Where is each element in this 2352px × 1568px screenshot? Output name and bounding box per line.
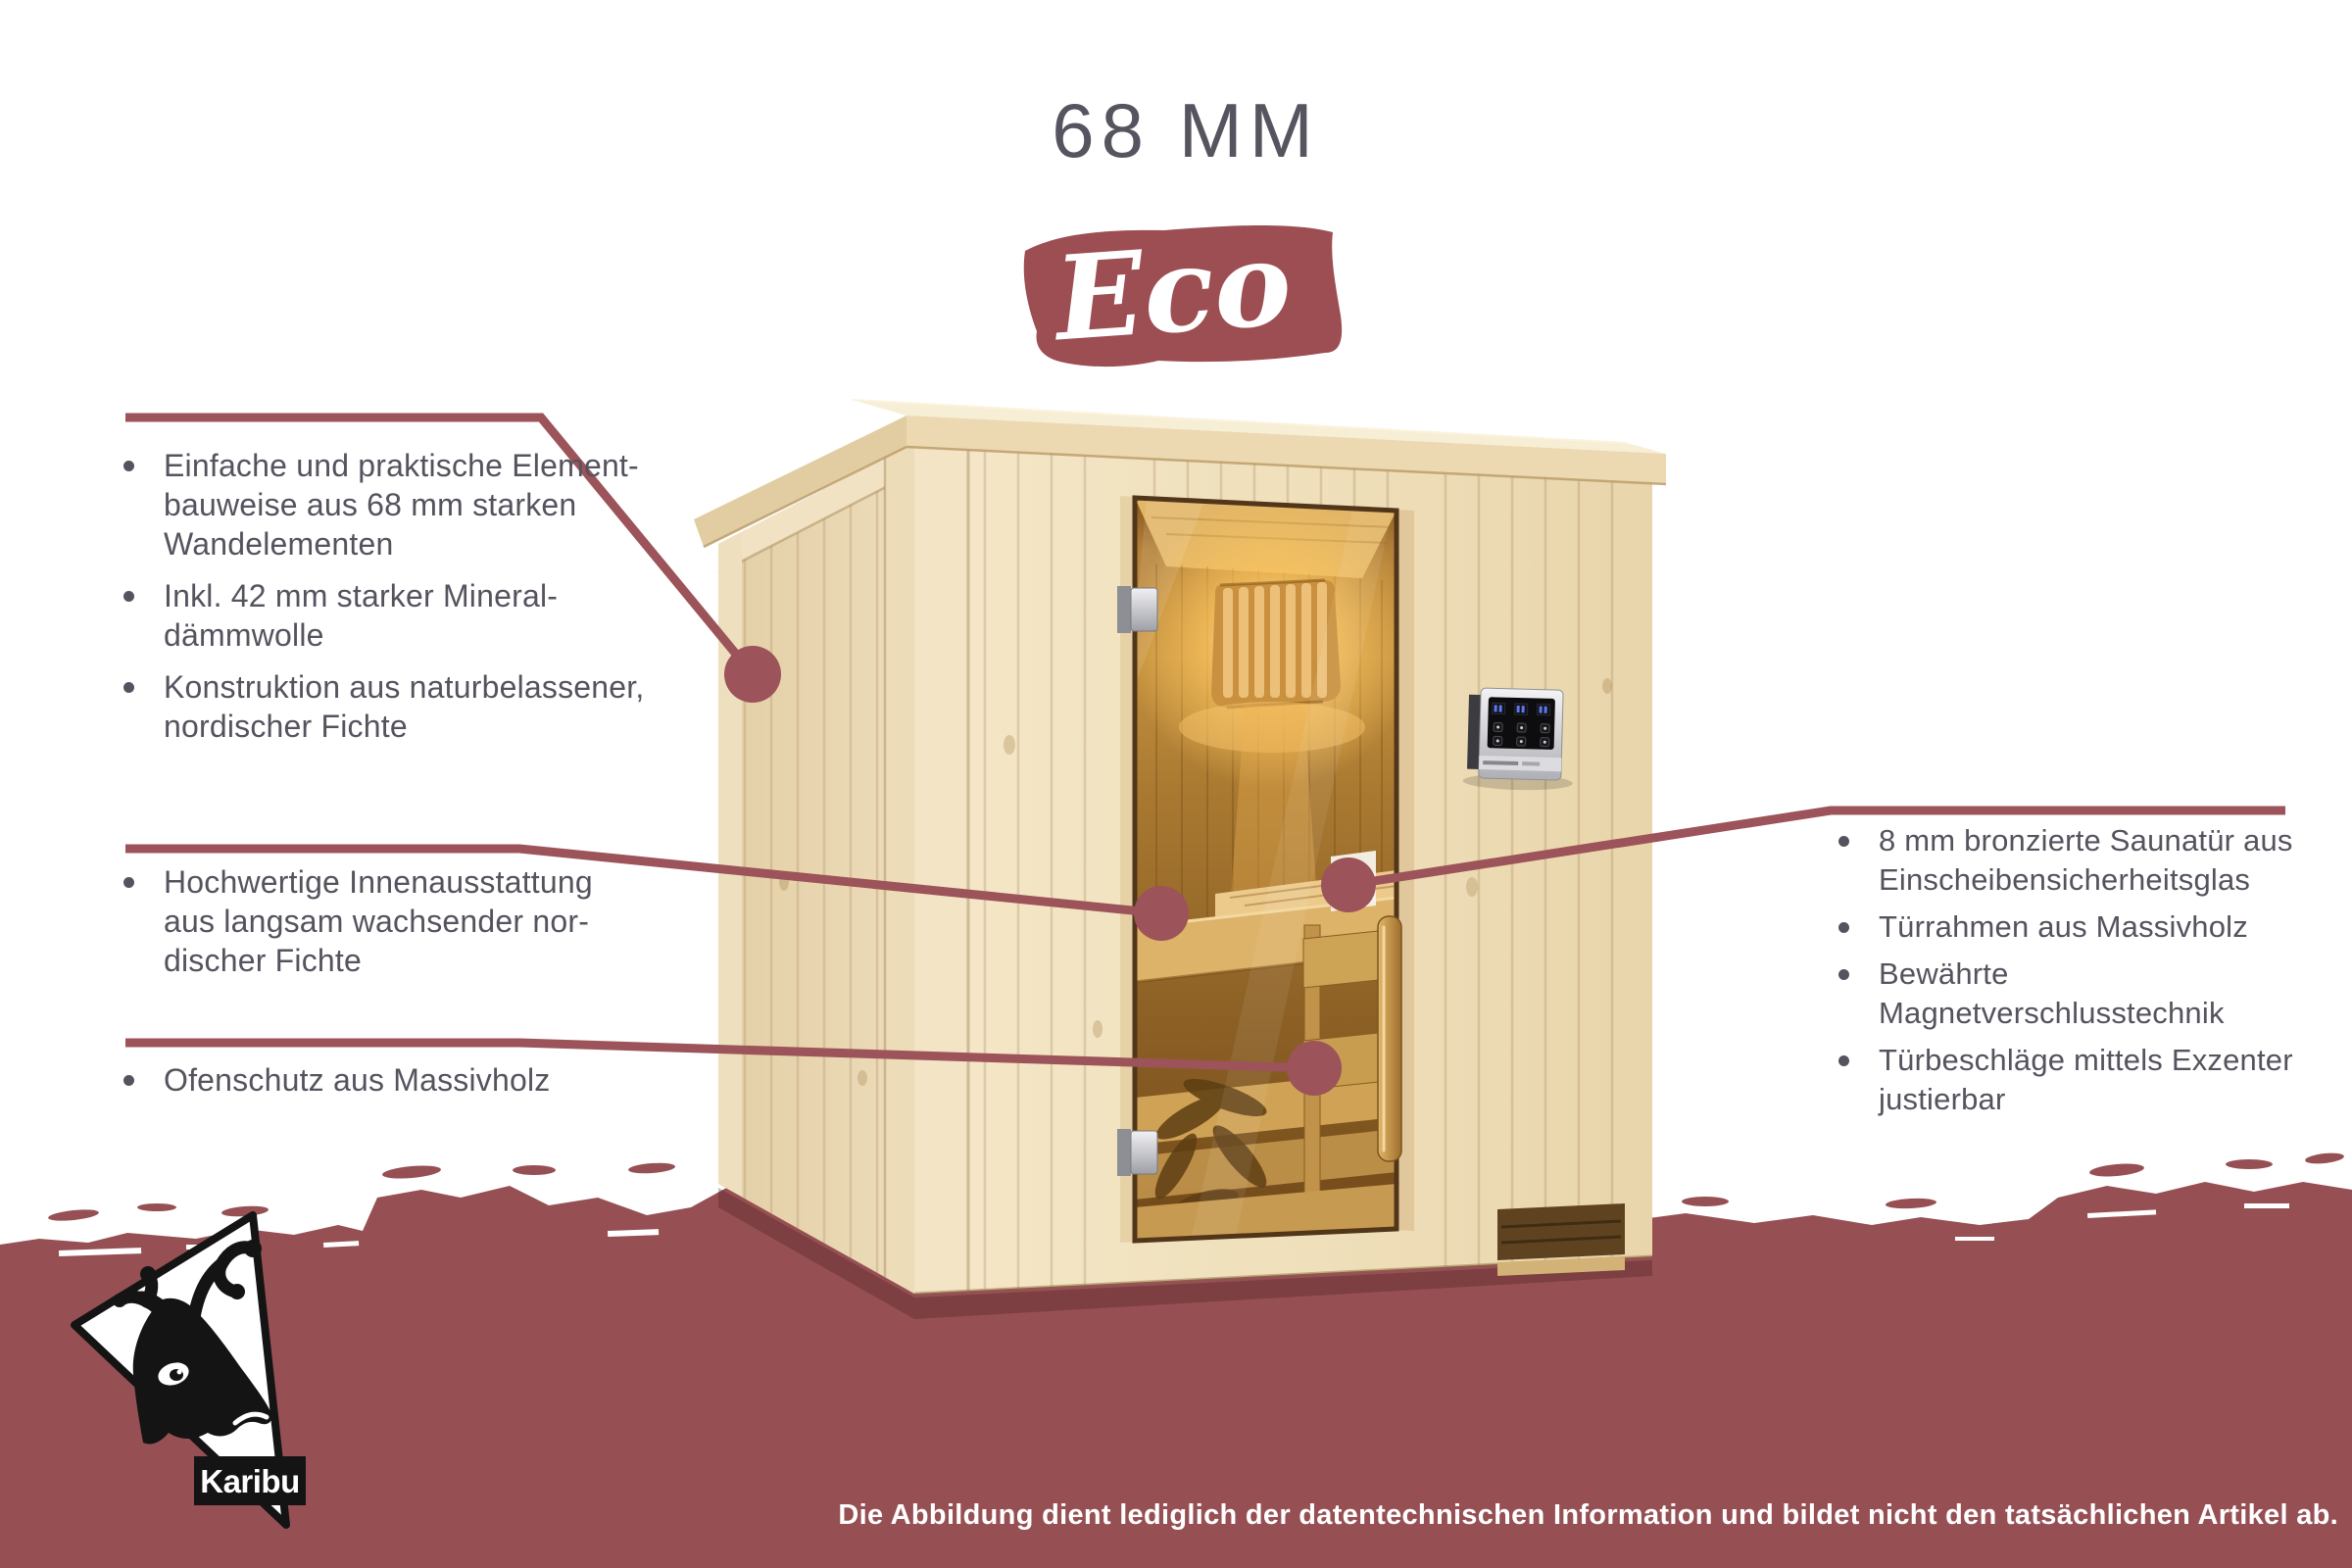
door-handle	[1378, 916, 1401, 1161]
badge-label: Eco	[1048, 215, 1296, 367]
feature-line: justierbar	[1879, 1080, 2293, 1119]
feature-line: 8 mm bronzierte Saunatür aus	[1879, 821, 2293, 860]
bullet-icon	[123, 682, 134, 693]
bullet-icon	[1838, 836, 1849, 847]
floor-vent	[1497, 1203, 1625, 1276]
bullet-icon	[123, 591, 134, 602]
feature-line: Einfache und praktische Element-	[164, 446, 639, 485]
bullet-icon	[123, 877, 134, 888]
list-item: 8 mm bronzierte Saunatür aus Einscheiben…	[1838, 821, 2352, 900]
panel-displays	[1493, 703, 1550, 715]
feature-list-left-mid: Hochwertige Innenausstattung aus langsam…	[123, 862, 593, 993]
list-item: Türbeschläge mittels Exzenter justierbar	[1838, 1041, 2352, 1119]
list-item: Hochwertige Innenausstattung aus langsam…	[123, 862, 593, 980]
sauna-control-panel	[1463, 688, 1576, 792]
feature-line: dämmwolle	[164, 615, 558, 655]
feature-line: Hochwertige Innenausstattung	[164, 862, 593, 902]
bullet-icon	[123, 1075, 134, 1086]
disclaimer-text: Die Abbildung dient lediglich der datent…	[838, 1499, 2338, 1532]
feature-list-left-top: Einfache und praktische Element- bauweis…	[123, 446, 644, 759]
feature-line: Wandelementen	[164, 524, 639, 563]
bullet-icon	[1838, 922, 1849, 933]
bullet-icon	[1838, 1055, 1849, 1066]
feature-list-right: 8 mm bronzierte Saunatür aus Einscheiben…	[1838, 821, 2352, 1127]
list-item: Konstruktion aus naturbelassener, nordis…	[123, 667, 644, 746]
list-item: Einfache und praktische Element- bauweis…	[123, 446, 644, 563]
scene-graphics: Karibu	[0, 0, 2352, 1568]
brand-label: Karibu	[200, 1463, 300, 1499]
feature-line: Einscheibensicherheitsglas	[1879, 860, 2293, 900]
feature-line: Ofenschutz aus Massivholz	[164, 1060, 551, 1100]
feature-line: bauweise aus 68 mm starken	[164, 485, 639, 524]
feature-line: aus langsam wachsender nor-	[164, 902, 593, 941]
feature-line: Türrahmen aus Massivholz	[1879, 907, 2248, 947]
eco-badge: Eco	[1024, 215, 1342, 367]
door-hinge-bottom	[1117, 1129, 1157, 1176]
list-item: Inkl. 42 mm starker Mineral- dämmwolle	[123, 576, 644, 655]
list-item: Bewährte Magnetverschlusstechnik	[1838, 955, 2352, 1033]
feature-list-left-bottom: Ofenschutz aus Massivholz	[123, 1060, 551, 1112]
feature-line: Türbeschläge mittels Exzenter	[1879, 1041, 2293, 1080]
callout-dot-interior	[1134, 886, 1189, 941]
feature-line: discher Fichte	[164, 941, 593, 980]
feature-line: nordischer Fichte	[164, 707, 644, 746]
page-title: 68 MM	[980, 86, 1392, 175]
door-hinge-top	[1117, 586, 1157, 633]
list-item: Türrahmen aus Massivholz	[1838, 907, 2352, 947]
bullet-icon	[123, 461, 134, 471]
callout-dot-wall	[724, 646, 781, 703]
callout-dot-door	[1321, 857, 1376, 912]
product-sheet: Karibu	[0, 0, 2352, 1568]
feature-line: Konstruktion aus naturbelassener,	[164, 667, 644, 707]
feature-line: Bewährte Magnetverschlusstechnik	[1879, 955, 2352, 1033]
list-item: Ofenschutz aus Massivholz	[123, 1060, 551, 1100]
bullet-icon	[1838, 969, 1849, 980]
feature-line: Inkl. 42 mm starker Mineral-	[164, 576, 558, 615]
callout-dot-ovenguard	[1287, 1041, 1342, 1096]
